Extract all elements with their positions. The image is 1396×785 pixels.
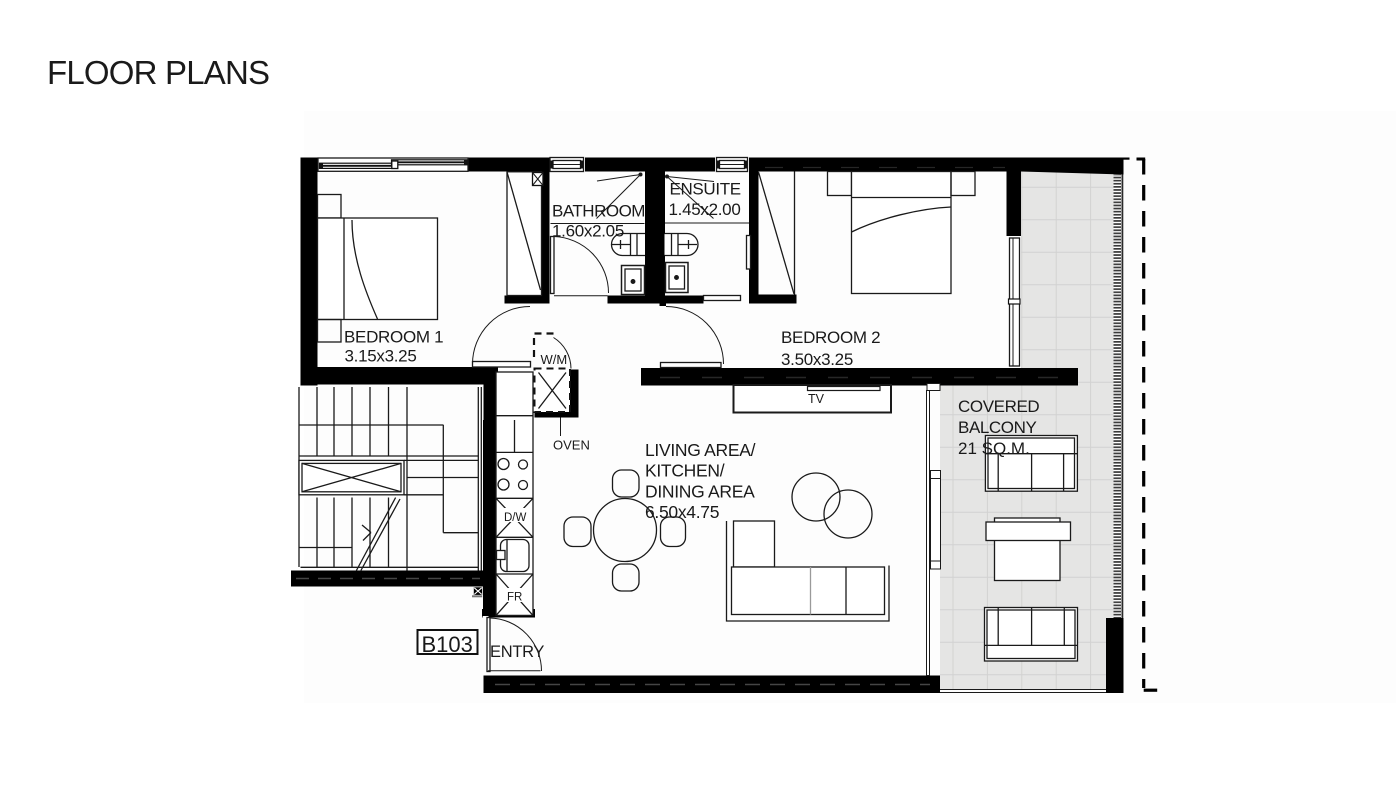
svg-text:KITCHEN/: KITCHEN/ [645, 461, 725, 481]
svg-text:BALCONY: BALCONY [958, 418, 1037, 437]
svg-text:ENSUITE: ENSUITE [670, 180, 741, 199]
svg-text:3.15x3.25: 3.15x3.25 [345, 347, 417, 366]
svg-text:21 SQ.M.: 21 SQ.M. [958, 439, 1030, 458]
svg-text:TV: TV [808, 392, 825, 406]
svg-text:W/M: W/M [541, 352, 568, 367]
svg-text:D/W: D/W [504, 512, 527, 524]
svg-text:BEDROOM 2: BEDROOM 2 [781, 328, 880, 347]
svg-text:BATHROOM: BATHROOM [552, 202, 645, 221]
svg-text:OVEN: OVEN [553, 438, 590, 453]
svg-text:LIVING AREA/: LIVING AREA/ [645, 440, 756, 460]
svg-text:FLOOR PLANS: FLOOR PLANS [47, 54, 269, 91]
svg-text:BEDROOM 1: BEDROOM 1 [344, 328, 443, 347]
svg-text:1.60x2.05: 1.60x2.05 [552, 222, 624, 241]
svg-text:ENTRY: ENTRY [490, 643, 544, 661]
svg-text:B103: B103 [422, 632, 473, 657]
svg-text:1.45x2.00: 1.45x2.00 [669, 200, 741, 219]
svg-text:DINING AREA: DINING AREA [645, 482, 755, 502]
svg-text:FR: FR [507, 592, 522, 604]
svg-text:3.50x3.25: 3.50x3.25 [781, 350, 853, 369]
svg-text:COVERED: COVERED [958, 397, 1039, 416]
svg-text:6.50x4.75: 6.50x4.75 [645, 502, 719, 522]
